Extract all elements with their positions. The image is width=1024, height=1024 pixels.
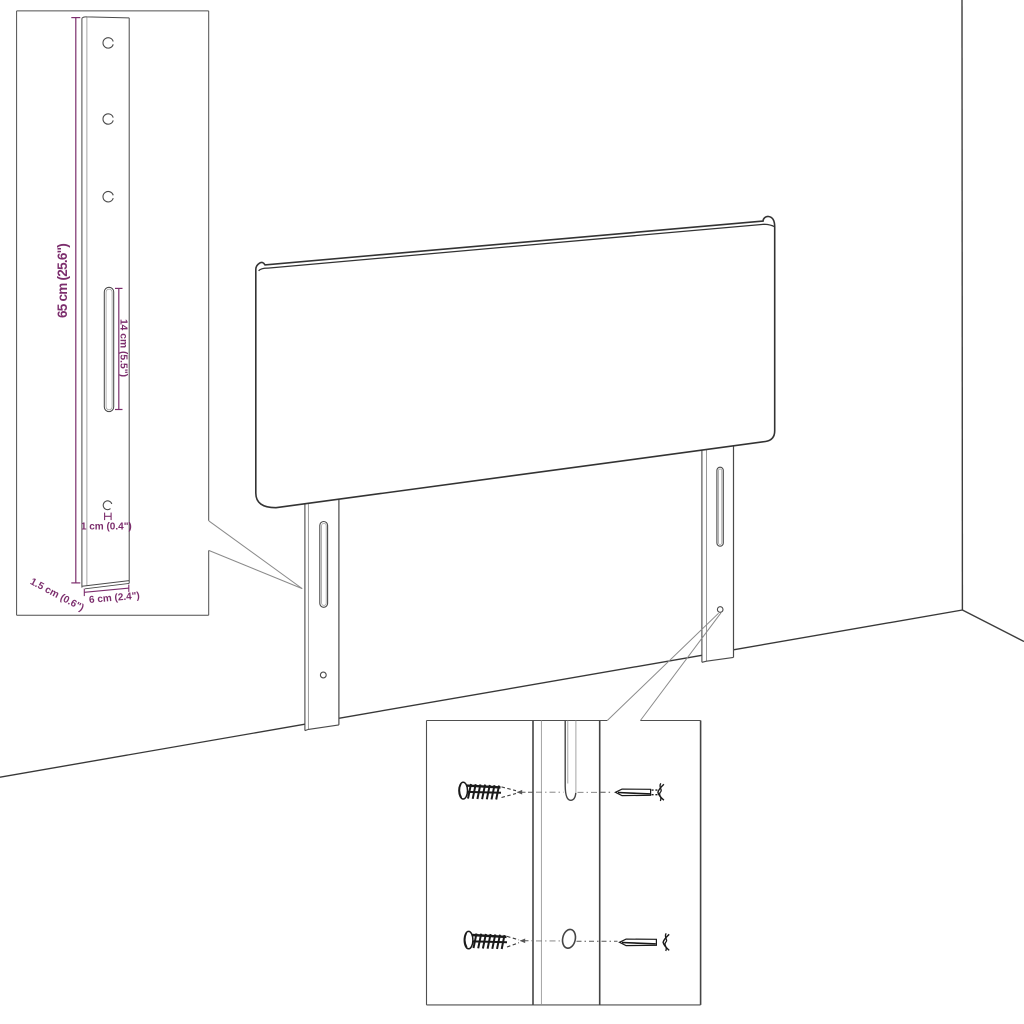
svg-text:1 cm (0.4"): 1 cm (0.4") (81, 521, 132, 532)
svg-text:65 cm (25.6"): 65 cm (25.6") (55, 244, 70, 318)
svg-text:14 cm (5.5"): 14 cm (5.5") (118, 319, 129, 377)
